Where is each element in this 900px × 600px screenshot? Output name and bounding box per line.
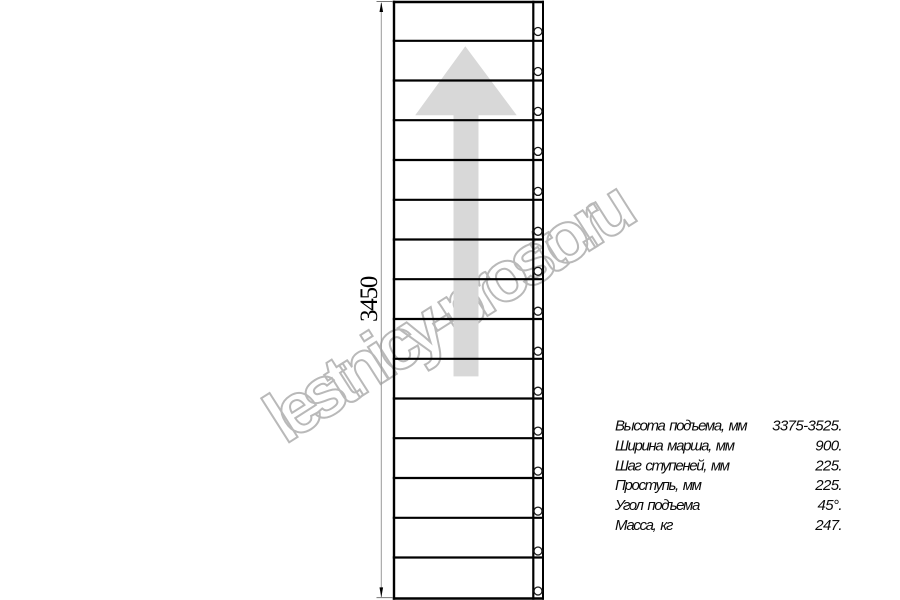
svg-text:3375-3525.: 3375-3525. <box>772 418 842 435</box>
svg-text:Угол подъема: Угол подъема <box>614 497 700 514</box>
svg-text:45°.: 45°. <box>818 497 842 514</box>
svg-text:900.: 900. <box>815 437 842 454</box>
svg-text:Ширина марша, мм: Ширина марша, мм <box>615 437 735 454</box>
svg-text:Шаг ступеней, мм: Шаг ступеней, мм <box>615 457 730 474</box>
svg-text:Масса, кг: Масса, кг <box>615 517 674 534</box>
svg-text:225.: 225. <box>814 477 842 494</box>
svg-text:3450: 3450 <box>356 276 383 322</box>
svg-text:225.: 225. <box>814 457 842 474</box>
svg-text:Проступь, мм: Проступь, мм <box>615 477 702 494</box>
svg-text:247.: 247. <box>814 517 842 534</box>
svg-text:Высота подъема, мм: Высота подъема, мм <box>615 418 747 435</box>
